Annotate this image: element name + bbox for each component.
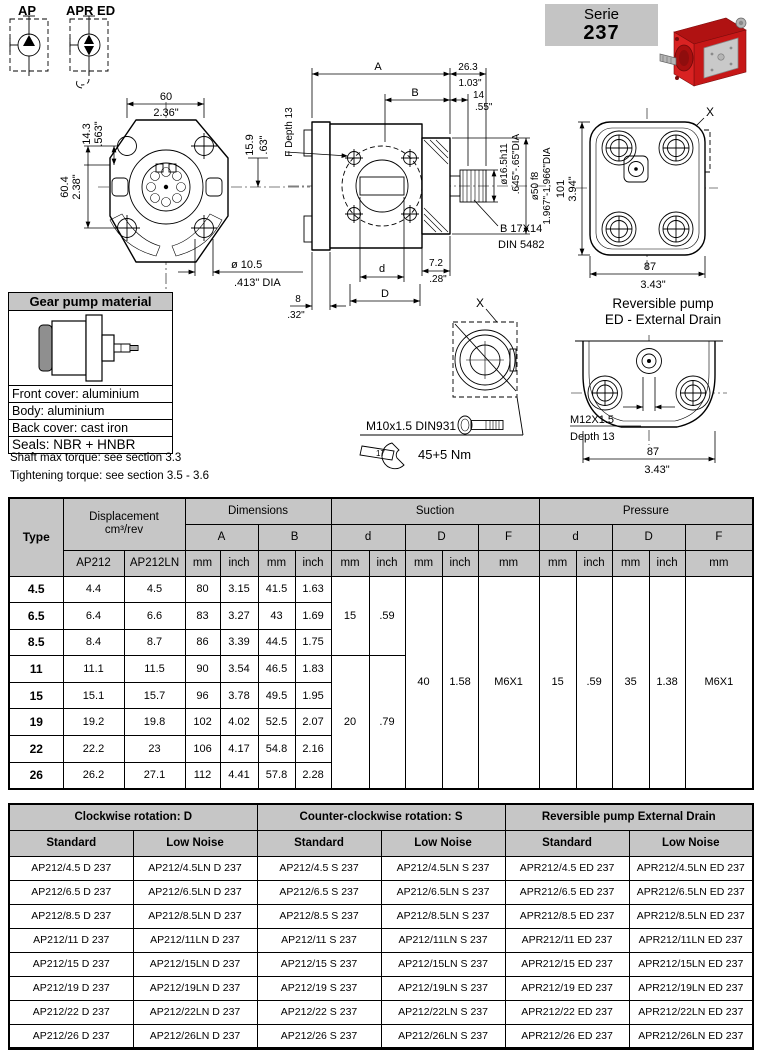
dim-back-height-mm: 101 [556, 180, 567, 198]
col-type-header: Type [9, 498, 63, 576]
bolt-spec: M10x1.5 DIN931 [366, 419, 456, 433]
order-code: AP212/8.5LN D 237 [133, 904, 257, 928]
series-label: Serie [545, 4, 658, 23]
unit-inch: inch [649, 550, 685, 576]
order-code: AP212/4.5LN D 237 [133, 856, 257, 880]
cell: 19.2 [63, 709, 124, 736]
group-reversible-header: Reversible pump External Drain [505, 804, 753, 830]
series-badge: Serie 237 [545, 4, 658, 46]
group-counterclockwise-header: Counter-clockwise rotation: S [257, 804, 505, 830]
side-view-drawing: A 26.3 1.03" B 14 .55" ø16.5h11 .645"-.6… [282, 60, 572, 322]
cell: 41.5 [258, 576, 295, 603]
unit-inch: inch [442, 550, 478, 576]
dim-pilot-dia: ø50 f8 [530, 171, 541, 200]
reversible-title-line1: Reversible pump [570, 296, 756, 312]
sub-low-noise-header: Low Noise [629, 830, 753, 856]
wrench-icon: 17 [360, 443, 404, 469]
note-tightening-torque: Tightening torque: see section 3.5 - 3.6 [10, 470, 209, 482]
cell: 4.17 [220, 736, 258, 763]
pressure-d-inch: .59 [576, 576, 612, 789]
cell: 106 [185, 736, 220, 763]
material-info-box: Gear pump material Front cover: aluminiu… [8, 292, 173, 454]
dim-front-height-mm: 60.4 [59, 176, 71, 197]
detail-x-drawing: X M10x1.5 DIN931 17 45+5 Nm [358, 293, 573, 471]
order-code: AP212/11 S 237 [257, 928, 381, 952]
order-code: AP212/15LN D 237 [133, 952, 257, 976]
cell: 4.4 [63, 576, 124, 603]
table-row: AP212/22 D 237 AP212/22LN D 237 AP212/22… [9, 1000, 753, 1024]
pressure-d-header: d [539, 524, 612, 550]
order-code: AP212/15 S 237 [257, 952, 381, 976]
type-cell: 22 [9, 736, 63, 763]
cell: 1.69 [295, 603, 331, 630]
order-code: AP212/15LN S 237 [381, 952, 505, 976]
order-code: APR212/19 ED 237 [505, 976, 629, 1000]
dim-hole-dia-in: .413" DIA [234, 277, 281, 289]
cell: 2.16 [295, 736, 331, 763]
cell: 83 [185, 603, 220, 630]
cell: 23 [124, 736, 185, 763]
unit-mm: mm [258, 550, 295, 576]
dim-shaft-len-in: 1.03" [458, 78, 481, 89]
order-code: AP212/6.5LN S 237 [381, 880, 505, 904]
dim-front-width-mm: 60 [160, 91, 172, 103]
table-row: AP212/8.5 D 237 AP212/8.5LN D 237 AP212/… [9, 904, 753, 928]
suction-D-mm: 40 [405, 576, 442, 789]
dim-hole-dia-mm: ø 10.5 [231, 259, 262, 271]
order-code: AP212/22 D 237 [9, 1000, 133, 1024]
unit-inch: inch [369, 550, 405, 576]
spline-spec: B 17X14 [500, 223, 542, 235]
order-code: APR212/11 ED 237 [505, 928, 629, 952]
pressure-f-thread: M6X1 [685, 576, 753, 789]
material-back-cover: Back cover: cast iron [9, 420, 172, 437]
reversible-title-line2: ED - External Drain [570, 312, 756, 328]
dim-hole-offset-mm: 14.3 [81, 123, 93, 144]
drain-thread-spec: M12X1.5 [570, 414, 614, 426]
dim-port-offset-mm: 15.9 [244, 134, 256, 155]
note-shaft-torque: Shaft max torque: see section 3.3 [10, 452, 181, 464]
cell: 26.2 [63, 762, 124, 789]
table-row: AP212/6.5 D 237 AP212/6.5LN D 237 AP212/… [9, 880, 753, 904]
col-pressure-header: Pressure [539, 498, 753, 524]
reversible-pump-title: Reversible pump ED - External Drain [570, 296, 756, 328]
detail-x-ref-label: X [706, 105, 714, 119]
dim-flange-mm: 8 [295, 294, 301, 305]
table-row: AP212/15 D 237 AP212/15LN D 237 AP212/15… [9, 952, 753, 976]
bolt-icon [458, 416, 503, 434]
cell: 3.15 [220, 576, 258, 603]
order-code: AP212/4.5 S 237 [257, 856, 381, 880]
sub-standard-header: Standard [257, 830, 381, 856]
cell: 1.83 [295, 656, 331, 683]
dimension-table: Type Displacement cm³/rev Dimensions Suc… [8, 497, 754, 790]
front-view-drawing: 60 2.36" 14.3 .563" 60.4 2.38" ø 10.5 .4… [58, 88, 310, 300]
order-code: AP212/6.5LN D 237 [133, 880, 257, 904]
pressure-f-header: F [685, 524, 753, 550]
type-cell: 11 [9, 656, 63, 683]
suction-d-inch-small: .59 [369, 576, 405, 656]
order-code: AP212/26LN S 237 [381, 1024, 505, 1048]
cell: 22.2 [63, 736, 124, 763]
unit-mm: mm [478, 550, 539, 576]
sub-standard-header: Standard [505, 830, 629, 856]
order-code: AP212/22LN S 237 [381, 1000, 505, 1024]
table-row: 4.5 4.4 4.5 80 3.15 41.5 1.63 15 .59 40 … [9, 576, 753, 603]
sub-standard-header: Standard [9, 830, 133, 856]
cell: 3.39 [220, 629, 258, 656]
apr-ed-hydraulic-symbol-icon [62, 15, 120, 89]
order-code: AP212/19LN D 237 [133, 976, 257, 1000]
cell: 44.5 [258, 629, 295, 656]
datasheet-page: AP APR ED Serie 237 [0, 0, 760, 1056]
cell: 15.1 [63, 682, 124, 709]
order-code: AP212/11LN D 237 [133, 928, 257, 952]
order-code: APR212/6.5LN ED 237 [629, 880, 753, 904]
table-row: AP212/19 D 237 AP212/19LN D 237 AP212/19… [9, 976, 753, 1000]
cell: 6.4 [63, 603, 124, 630]
cell: 2.28 [295, 762, 331, 789]
cell: 6.6 [124, 603, 185, 630]
cell: 54.8 [258, 736, 295, 763]
ordering-code-table: Clockwise rotation: D Counter-clockwise … [8, 803, 754, 1050]
order-code: AP212/26LN D 237 [133, 1024, 257, 1048]
col-a-header: A [185, 524, 258, 550]
series-number: 237 [545, 23, 658, 44]
unit-mm: mm [539, 550, 576, 576]
cell: 3.27 [220, 603, 258, 630]
cell: 112 [185, 762, 220, 789]
wrench-size-label: 17 [376, 449, 385, 458]
cell: 57.8 [258, 762, 295, 789]
unit-mm: mm [331, 550, 369, 576]
dim-port-offset-in: .63" [258, 135, 270, 154]
order-code: AP212/22LN D 237 [133, 1000, 257, 1024]
cell: 1.95 [295, 682, 331, 709]
dim-d-label: d [379, 263, 385, 275]
order-code: APR212/19LN ED 237 [629, 976, 753, 1000]
order-code: APR212/15LN ED 237 [629, 952, 753, 976]
type-cell: 26 [9, 762, 63, 789]
order-code: AP212/22 S 237 [257, 1000, 381, 1024]
cell: 11.1 [63, 656, 124, 683]
suction-d-mm-large: 20 [331, 656, 369, 789]
type-cell: 6.5 [9, 603, 63, 630]
cell: 86 [185, 629, 220, 656]
ap212ln-header: AP212LN [124, 550, 185, 576]
dim-shaft-dia-in: .645"-.65"DIA [511, 133, 522, 194]
cell: 90 [185, 656, 220, 683]
type-cell: 19 [9, 709, 63, 736]
unit-inch: inch [576, 550, 612, 576]
cell: 27.1 [124, 762, 185, 789]
material-box-title: Gear pump material [9, 293, 172, 311]
pump-section-image [9, 311, 172, 386]
displacement-label: Displacement [64, 511, 185, 524]
suction-d-mm-small: 15 [331, 576, 369, 656]
cell: 80 [185, 576, 220, 603]
cell: 2.07 [295, 709, 331, 736]
suction-d-header: d [331, 524, 405, 550]
order-code: APR212/26LN ED 237 [629, 1024, 753, 1048]
cell: 102 [185, 709, 220, 736]
order-code: APR212/6.5 ED 237 [505, 880, 629, 904]
dim-back-width-in: 3.43" [640, 279, 665, 291]
unit-inch: inch [295, 550, 331, 576]
order-code: AP212/4.5 D 237 [9, 856, 133, 880]
cell: 1.75 [295, 629, 331, 656]
order-code: AP212/11LN S 237 [381, 928, 505, 952]
order-code: AP212/19 D 237 [9, 976, 133, 1000]
type-cell: 15 [9, 682, 63, 709]
order-code: AP212/6.5 S 237 [257, 880, 381, 904]
type-cell: 4.5 [9, 576, 63, 603]
pressure-D-inch: 1.38 [649, 576, 685, 789]
dim-shaft-tip-mm: 14 [473, 90, 485, 101]
order-code: AP212/8.5 S 237 [257, 904, 381, 928]
cell: 1.63 [295, 576, 331, 603]
cell: 52.5 [258, 709, 295, 736]
cell: 3.78 [220, 682, 258, 709]
unit-mm: mm [685, 550, 753, 576]
order-code: AP212/4.5LN S 237 [381, 856, 505, 880]
order-code: AP212/8.5 D 237 [9, 904, 133, 928]
cell: 8.7 [124, 629, 185, 656]
dim-back-height-in: 3.94" [567, 176, 579, 201]
order-code: APR212/8.5 ED 237 [505, 904, 629, 928]
unit-mm: mm [405, 550, 442, 576]
order-code: AP212/6.5 D 237 [9, 880, 133, 904]
cell: 4.41 [220, 762, 258, 789]
displacement-unit: cm³/rev [64, 524, 185, 537]
col-suction-header: Suction [331, 498, 539, 524]
dim-gap-in: .28" [429, 274, 447, 285]
cell: 4.5 [124, 576, 185, 603]
dim-shaft-dia: ø16.5h11 [499, 143, 510, 185]
order-code: APR212/8.5LN ED 237 [629, 904, 753, 928]
table-row: AP212/26 D 237 AP212/26LN D 237 AP212/26… [9, 1024, 753, 1048]
dim-flange-in: .32" [287, 310, 305, 321]
dim-pilot-dia-in: 1.967"-1.966"DIA [542, 147, 553, 224]
dim-back-width-mm: 87 [644, 261, 656, 273]
cell: 8.4 [63, 629, 124, 656]
order-code: AP212/19 S 237 [257, 976, 381, 1000]
cell: 3.54 [220, 656, 258, 683]
order-code: AP212/26 D 237 [9, 1024, 133, 1048]
dim-b-label: B [411, 87, 418, 99]
unit-mm: mm [612, 550, 649, 576]
suction-f-header: F [478, 524, 539, 550]
cell: 11.5 [124, 656, 185, 683]
cell: 96 [185, 682, 220, 709]
cell: 46.5 [258, 656, 295, 683]
dim-gap-mm: 7.2 [429, 258, 443, 269]
order-code: AP212/15 D 237 [9, 952, 133, 976]
mounting-thread-label: F Depth 13 [284, 107, 295, 157]
pump-product-image [646, 6, 754, 94]
type-cell: 8.5 [9, 629, 63, 656]
order-code: AP212/11 D 237 [9, 928, 133, 952]
dim-shaft-tip-in: .55" [475, 102, 493, 113]
dim-front-width-in: 2.36" [153, 107, 178, 119]
order-code: AP212/8.5LN S 237 [381, 904, 505, 928]
table-row: AP212/4.5 D 237 AP212/4.5LN D 237 AP212/… [9, 856, 753, 880]
order-code: APR212/15 ED 237 [505, 952, 629, 976]
unit-mm: mm [185, 550, 220, 576]
pressure-big-d-header: D [612, 524, 685, 550]
suction-d-inch-large: .79 [369, 656, 405, 789]
order-code: APR212/26 ED 237 [505, 1024, 629, 1048]
ap212-header: AP212 [63, 550, 124, 576]
order-code: APR212/4.5 ED 237 [505, 856, 629, 880]
reversible-pump-drawing: M12X1.5 Depth 13 87 3.43" [565, 333, 760, 481]
drain-thread-depth: Depth 13 [570, 431, 615, 443]
cell: 15.7 [124, 682, 185, 709]
dim-rev-width-in: 3.43" [644, 464, 669, 476]
col-dimensions-header: Dimensions [185, 498, 331, 524]
sub-low-noise-header: Low Noise [133, 830, 257, 856]
sub-low-noise-header: Low Noise [381, 830, 505, 856]
dim-front-height-in: 2.38" [71, 174, 83, 199]
suction-big-d-header: D [405, 524, 478, 550]
order-code: APR212/4.5LN ED 237 [629, 856, 753, 880]
suction-D-inch: 1.58 [442, 576, 478, 789]
dim-hole-offset-in: .563" [93, 121, 105, 146]
material-front-cover: Front cover: aluminium [9, 386, 172, 403]
table-row: AP212/11 D 237 AP212/11LN D 237 AP212/11… [9, 928, 753, 952]
pressure-d-mm: 15 [539, 576, 576, 789]
order-code: AP212/26 S 237 [257, 1024, 381, 1048]
cell: 49.5 [258, 682, 295, 709]
col-displacement-header: Displacement cm³/rev [63, 498, 185, 550]
order-code: AP212/19LN S 237 [381, 976, 505, 1000]
order-code: APR212/11LN ED 237 [629, 928, 753, 952]
torque-value: 45+5 Nm [418, 447, 471, 462]
material-seals: Seals: NBR + HNBR [9, 437, 172, 453]
pressure-D-mm: 35 [612, 576, 649, 789]
group-clockwise-header: Clockwise rotation: D [9, 804, 257, 830]
cell: 4.02 [220, 709, 258, 736]
back-view-drawing: X 101 3.94" 87 3.43" [556, 98, 760, 298]
order-code: APR212/22 ED 237 [505, 1000, 629, 1024]
order-code: APR212/22LN ED 237 [629, 1000, 753, 1024]
dim-shaft-len-mm: 26.3 [458, 62, 478, 73]
dim-a-label: A [374, 61, 382, 73]
unit-inch: inch [220, 550, 258, 576]
cell: 43 [258, 603, 295, 630]
cell: 19.8 [124, 709, 185, 736]
dim-rev-width-mm: 87 [647, 446, 659, 458]
suction-f-thread: M6X1 [478, 576, 539, 789]
ap-hydraulic-symbol-icon [8, 15, 58, 79]
spline-standard: DIN 5482 [498, 239, 544, 251]
detail-x-label: X [476, 296, 484, 310]
col-b-header: B [258, 524, 331, 550]
material-body: Body: aluminium [9, 403, 172, 420]
